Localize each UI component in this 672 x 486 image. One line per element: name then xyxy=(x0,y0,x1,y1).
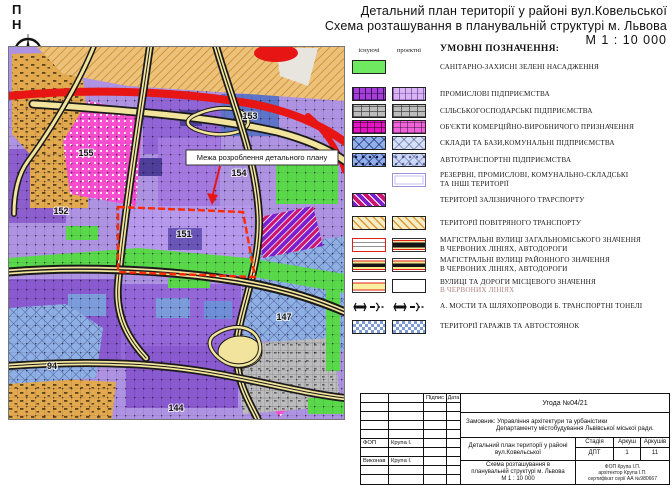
legend-label: ТЕРИТОРІЇ ЗАЛІЗНИЧНОГО ТРАРСПОРТУ xyxy=(440,196,585,204)
sheet-header: Аркуш xyxy=(614,438,641,447)
title-line-2: Схема розташування в планувальній структ… xyxy=(325,19,667,34)
stage-value: ДПТ xyxy=(576,448,614,460)
role-label: Виконав xyxy=(361,457,389,465)
legend-col-existing: існуючі xyxy=(352,47,386,54)
firm-cell: ФОП Крупа І.П. архітектор Крупа І.П. сер… xyxy=(576,461,669,484)
scheme-line-3: М 1 : 10 000 xyxy=(501,476,534,483)
legend-label: СІЛЬСЬКОГОСПОДАРСЬКІ ПІДПРИЄМСТВА xyxy=(440,107,593,115)
legend-item-green: САНІТАРНО-ЗАХИСНІ ЗЕЛЕНІ НАСАДЖЕННЯ xyxy=(352,60,670,74)
swatch-city-magistral-existing xyxy=(352,238,386,252)
legend-item-railway: ТЕРИТОРІЇ ЗАЛІЗНИЧНОГО ТРАРСПОРТУ xyxy=(352,193,670,207)
swatch-reserve-projected xyxy=(392,173,426,187)
swatch-garages-projected xyxy=(392,320,426,334)
scheme-name-cell: Схема розташування в планувальній структ… xyxy=(461,461,576,484)
title-line-1: Детальний план території у районі вул.Ко… xyxy=(325,4,667,19)
legend-label-line2: В ЧЕРВОНИХ ЛІНІЯХ xyxy=(440,286,596,295)
legend-item-warehouse: СКЛАДИ ТА БАЗИ,КОМУНАЛЬНІ ПІДПРИЄМСТВА xyxy=(352,136,670,150)
legend-label-line2: ТА ІНШІ ТЕРИТОРІЇ xyxy=(440,180,628,189)
person-name: Крупа І. xyxy=(389,457,424,465)
client-line-2: Департаменту містобудування Львівської м… xyxy=(466,425,669,433)
legend-item-reserve: РЕЗЕРВНІ, ПРОМИСЛОВІ, КОМУНАЛЬНО-СКЛАДСЬ… xyxy=(352,171,670,188)
date-col-header: Дата xyxy=(447,394,461,402)
swatch-autotransport-projected xyxy=(392,153,426,167)
sheets-header: Аркушів xyxy=(641,438,669,447)
swatch-warehouse-projected xyxy=(392,136,426,150)
legend-label: АВТОТРАНСПОРТНІ ПІДПРИЄМСТВА xyxy=(440,156,571,164)
swatch-local-streets-existing xyxy=(352,279,386,293)
project-name-cell: Детальний план території у районі вул.Ко… xyxy=(461,438,576,460)
swatch-district-magistral-projected xyxy=(392,258,426,272)
legend-label: ТЕРИТОРІЇ ПОВІТРЯНОГО ТРАНСПОРТУ xyxy=(440,219,581,227)
sheet-title: Детальний план території у районі вул.Ко… xyxy=(325,4,667,48)
legend-item-city-magistral: МАГІСТРАЛЬНІ ВУЛИЦІ ЗАГАЛЬНОМІСЬКОГО ЗНА… xyxy=(352,236,670,253)
bridge-tunnel-symbols xyxy=(392,300,426,314)
swatch-air-projected xyxy=(392,216,426,230)
swatch-garages-existing xyxy=(352,320,386,334)
legend-heading: УМОВНІ ПОЗНАЧЕННЯ: xyxy=(440,44,559,54)
district-number: 154 xyxy=(231,168,246,178)
legend-label: МАГІСТРАЛЬНІ ВУЛИЦІ ЗАГАЛЬНОМІСЬКОГО ЗНА… xyxy=(440,236,641,244)
swatch-commercial-existing xyxy=(352,120,386,134)
swatch-agricultural-projected xyxy=(392,104,426,118)
client-line-1: Замовник: Управління архітектури та урба… xyxy=(466,418,669,426)
signature-table: Підпис Дата ФОП Крупа І. Виконав Крупа І… xyxy=(361,394,461,484)
agreement-number: Угода №04/21 xyxy=(461,394,669,413)
district-number: 155 xyxy=(78,148,93,158)
legend-label: СКЛАДИ ТА БАЗИ,КОМУНАЛЬНІ ПІДПРИЄМСТВА xyxy=(440,139,615,147)
person-name: Крупа І. xyxy=(389,439,424,447)
swatch-district-magistral-existing xyxy=(352,258,386,272)
swatch-air-existing xyxy=(352,216,386,230)
city-plan-map: Межа розроблення детального плану 153 15… xyxy=(8,46,345,420)
scheme-line-1: Схема розташування в xyxy=(486,462,550,469)
swatch-autotransport-existing xyxy=(352,153,386,167)
legend-label: САНІТАРНО-ЗАХИСНІ ЗЕЛЕНІ НАСАДЖЕННЯ xyxy=(440,63,599,71)
legend-label: ОБ'ЄКТИ КОМЕРЦІЙНО-ВИРОБНИЧОГО ПРИЗНАЧЕН… xyxy=(440,123,634,131)
legend: існуючі проектні УМОВНІ ПОЗНАЧЕННЯ: САНІ… xyxy=(352,44,670,334)
scheme-line-2: планувальній структурі м. Львова xyxy=(471,469,564,476)
legend-item-local-streets: ВУЛИЦІ ТА ДОРОГИ МІСЦЕВОГО ЗНАЧЕННЯ В ЧЕ… xyxy=(352,278,670,295)
map-drawing: Межа розроблення детального плану 153 15… xyxy=(8,46,345,420)
swatch-railway-existing xyxy=(352,193,386,207)
swatch-warehouse-existing xyxy=(352,136,386,150)
legend-label-line2: В ЧЕРВОНИХ ЛІНІЯХ, АВТОДОРОГИ xyxy=(440,265,610,274)
drawing-sheet: П Н Детальний план території у районі ву… xyxy=(0,0,672,486)
swatch-industrial-projected xyxy=(392,87,426,101)
legend-item-air: ТЕРИТОРІЇ ПОВІТРЯНОГО ТРАНСПОРТУ xyxy=(352,216,670,230)
role-label: ФОП xyxy=(361,439,389,447)
swatch-green-existing xyxy=(352,60,386,74)
signature-row-executor: Виконав Крупа І. xyxy=(361,457,461,466)
north-label: П Н xyxy=(12,2,52,32)
legend-label: МАГІСТРАЛЬНІ ВУЛИЦІ РАЙОННОГО ЗНАЧЕННЯ xyxy=(440,256,610,264)
swatch-industrial-existing xyxy=(352,87,386,101)
title-block-right: Угода №04/21 Замовник: Управління архіте… xyxy=(461,394,669,484)
project-line-1: Детальний план території у районі xyxy=(469,442,568,450)
district-number: 153 xyxy=(242,111,257,121)
district-number: 147 xyxy=(276,312,291,322)
legend-label: ТЕРИТОРІЇ ГАРАЖІВ ТА АВТОСТОЯНОК xyxy=(440,322,579,330)
legend-item-garages: ТЕРИТОРІЇ ГАРАЖІВ ТА АВТОСТОЯНОК xyxy=(352,320,670,334)
district-number: 94 xyxy=(47,361,57,371)
firm-line-3: сертифікат серії АА №980667 xyxy=(588,476,657,482)
legend-label: А. МОСТИ ТА ШЛЯХОПРОВОДИ Б. ТРАНСПОРТНІ … xyxy=(440,302,642,310)
swatch-commercial-projected xyxy=(392,120,426,134)
district-number: 144 xyxy=(168,403,183,413)
sheets-value: 11 xyxy=(641,448,669,460)
signature-col-header: Підпис xyxy=(424,394,447,402)
project-line-2: вул.Ковельської xyxy=(495,449,541,457)
title-block: Підпис Дата ФОП Крупа І. Виконав Крупа І… xyxy=(360,393,670,485)
legend-label: ВУЛИЦІ ТА ДОРОГИ МІСЦЕВОГО ЗНАЧЕННЯ xyxy=(440,278,596,286)
sheet-value: 1 xyxy=(614,448,641,460)
stage-header: Стадія xyxy=(576,438,614,447)
bridge-tunnel-symbols xyxy=(352,300,386,314)
legend-col-projected: проектні xyxy=(392,47,426,54)
swatch-city-magistral-projected xyxy=(392,238,426,252)
signature-row-fop: ФОП Крупа І. xyxy=(361,439,461,448)
boundary-label: Межа розроблення детального плану xyxy=(197,153,328,162)
legend-label: РЕЗЕРВНІ, ПРОМИСЛОВІ, КОМУНАЛЬНО-СКЛАДСЬ… xyxy=(440,171,628,179)
district-number: 151 xyxy=(176,229,191,239)
legend-item-bridges: А. МОСТИ ТА ШЛЯХОПРОВОДИ Б. ТРАНСПОРТНІ … xyxy=(352,300,670,314)
legend-item-autotransport: АВТОТРАНСПОРТНІ ПІДПРИЄМСТВА xyxy=(352,153,670,167)
legend-label-line2: В ЧЕРВОНИХ ЛІНІЯХ, АВТОДОРОГИ xyxy=(440,245,641,254)
swatch-local-streets-projected xyxy=(392,279,426,293)
stage-sheet-table: Стадія Аркуш Аркушів ДПТ 1 11 xyxy=(576,438,669,460)
legend-item-agricultural: СІЛЬСЬКОГОСПОДАРСЬКІ ПІДПРИЄМСТВА xyxy=(352,104,670,118)
legend-label: ПРОМИСЛОВІ ПІДПРИЄМСТВА xyxy=(440,90,550,98)
swatch-agricultural-existing xyxy=(352,104,386,118)
client-cell: Замовник: Управління архітектури та урба… xyxy=(461,413,669,438)
legend-item-district-magistral: МАГІСТРАЛЬНІ ВУЛИЦІ РАЙОННОГО ЗНАЧЕННЯ В… xyxy=(352,256,670,273)
legend-item-industrial: ПРОМИСЛОВІ ПІДПРИЄМСТВА xyxy=(352,87,670,101)
district-number: 152 xyxy=(53,206,68,216)
legend-item-commercial: ОБ'ЄКТИ КОМЕРЦІЙНО-ВИРОБНИЧОГО ПРИЗНАЧЕН… xyxy=(352,120,670,134)
